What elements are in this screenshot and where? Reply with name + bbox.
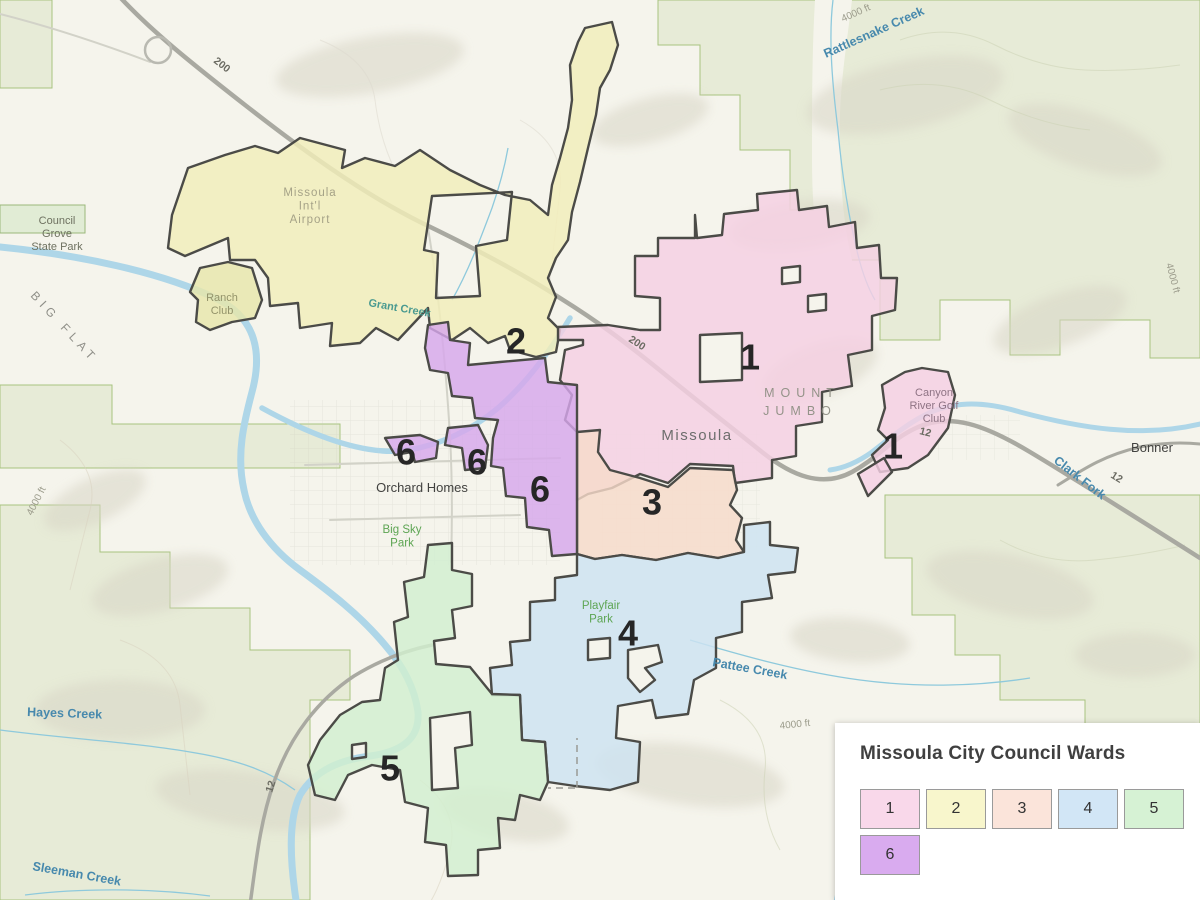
ward-4-number-label: 4 <box>618 613 638 654</box>
map-label: RanchClub <box>206 292 238 317</box>
map-label: MOUNT <box>764 386 840 400</box>
legend-swatch-ward-6: 6 <box>860 835 920 875</box>
legend-title: Missoula City Council Wards <box>860 743 1200 765</box>
legend-swatches: 123456 <box>860 789 1195 875</box>
legend-panel: Missoula City Council Wards 123456 <box>835 723 1200 900</box>
map-canvas[interactable]: CouncilGroveState ParkBIG FLATRanchClubM… <box>0 0 1200 900</box>
map-label: Orchard Homes <box>376 480 468 495</box>
map-label: Missoula <box>661 427 732 444</box>
map-label: JUMBO <box>763 404 837 418</box>
ward-6-number-label: 6 <box>467 442 487 483</box>
ward-2-number-label: 2 <box>506 321 526 362</box>
ward-3-number-label: 3 <box>642 482 662 523</box>
ward-1-number-label: 1 <box>883 426 903 467</box>
ward-1-number-label: 1 <box>740 337 760 378</box>
legend-swatch-ward-1: 1 <box>860 789 920 829</box>
ward-6-number-label: 6 <box>530 469 550 510</box>
map-label: Bonner <box>1131 440 1174 455</box>
map-label: Hayes Creek <box>27 705 103 722</box>
legend-swatch-ward-2: 2 <box>926 789 986 829</box>
legend-swatch-ward-5: 5 <box>1124 789 1184 829</box>
legend-swatch-ward-3: 3 <box>992 789 1052 829</box>
ward-6-number-label: 6 <box>396 432 416 473</box>
ward-5-number-label: 5 <box>380 748 400 789</box>
legend-swatch-ward-4: 4 <box>1058 789 1118 829</box>
